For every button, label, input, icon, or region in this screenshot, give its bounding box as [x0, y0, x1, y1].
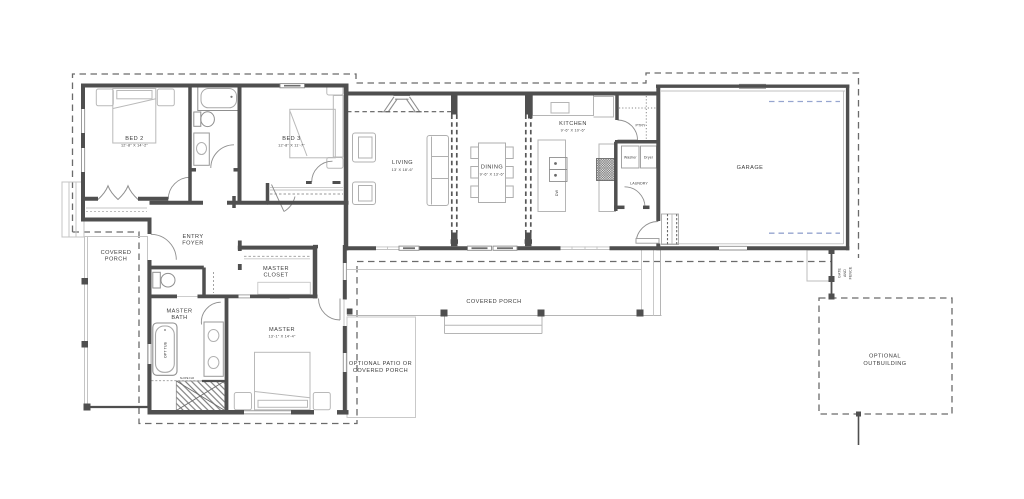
svg-text:Dryer: Dryer: [644, 156, 654, 160]
svg-text:COVERED PORCH: COVERED PORCH: [466, 299, 521, 305]
svg-text:FOYER: FOYER: [182, 240, 204, 246]
svg-text:12'-8" X 11'-7": 12'-8" X 11'-7": [278, 144, 305, 148]
svg-text:BED 3: BED 3: [282, 136, 300, 142]
svg-text:OUTBUILDING: OUTBUILDING: [863, 361, 906, 367]
svg-text:BATH: BATH: [171, 315, 187, 321]
svg-text:CLOSET: CLOSET: [263, 273, 288, 279]
svg-text:PTRY: PTRY: [636, 124, 646, 128]
svg-text:13' X 18'-6": 13' X 18'-6": [392, 168, 414, 172]
svg-text:OPTIONAL: OPTIONAL: [869, 354, 901, 360]
svg-text:Washer: Washer: [624, 156, 638, 160]
svg-text:OPTIONAL PATIO OR: OPTIONAL PATIO OR: [349, 361, 412, 367]
svg-text:LIVING: LIVING: [392, 160, 413, 166]
svg-text:ENTRY: ENTRY: [182, 234, 203, 240]
svg-text:13'-1" X 14'-4": 13'-1" X 14'-4": [269, 335, 296, 339]
svg-text:GATE: GATE: [838, 268, 842, 278]
svg-text:AND: AND: [843, 269, 847, 277]
svg-text:FENCE: FENCE: [849, 266, 853, 279]
svg-text:OPT TUB: OPT TUB: [164, 341, 168, 358]
svg-text:COVERED: COVERED: [101, 250, 132, 256]
svg-text:LAUNDRY: LAUNDRY: [630, 182, 648, 186]
svg-text:BED 2: BED 2: [125, 136, 143, 142]
svg-text:KITCHEN: KITCHEN: [559, 121, 587, 127]
svg-text:MASTER: MASTER: [166, 309, 192, 315]
svg-text:SLOPE FLR: SLOPE FLR: [180, 376, 194, 380]
svg-text:9'-6" X 10'-6": 9'-6" X 10'-6": [561, 129, 586, 133]
svg-text:MASTER: MASTER: [269, 327, 295, 333]
svg-text:DW: DW: [555, 189, 559, 196]
svg-text:COVERED PORCH: COVERED PORCH: [353, 368, 408, 374]
svg-text:GARAGE: GARAGE: [737, 165, 764, 171]
svg-text:MASTER: MASTER: [263, 266, 289, 272]
svg-text:9'-6" X 13'-6": 9'-6" X 13'-6": [480, 173, 505, 177]
svg-text:DINING: DINING: [481, 165, 503, 171]
svg-text:PORCH: PORCH: [105, 257, 127, 263]
svg-text:12'-8" X 14'-2": 12'-8" X 14'-2": [121, 144, 148, 148]
